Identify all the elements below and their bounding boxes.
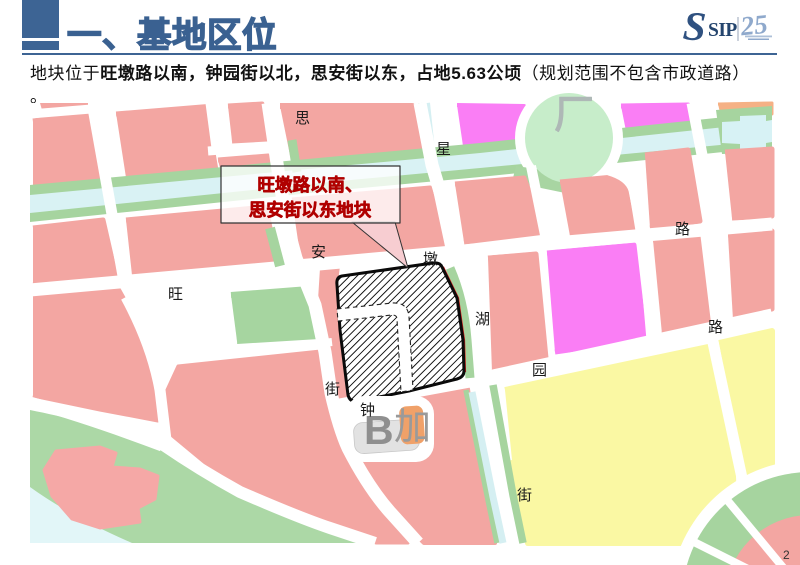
svg-text:旺: 旺 bbox=[168, 286, 183, 303]
svg-text:厂: 厂 bbox=[554, 93, 594, 137]
svg-text:安: 安 bbox=[311, 244, 326, 261]
svg-text:园: 园 bbox=[532, 362, 547, 379]
svg-text:路: 路 bbox=[675, 221, 690, 238]
svg-text:街: 街 bbox=[517, 487, 532, 504]
svg-text:路: 路 bbox=[708, 319, 723, 336]
svg-text:湖: 湖 bbox=[475, 311, 490, 328]
svg-text:思安街以东地块: 思安街以东地块 bbox=[249, 200, 372, 220]
svg-text:旺墩路以南、: 旺墩路以南、 bbox=[258, 175, 363, 195]
svg-text:街: 街 bbox=[325, 381, 340, 398]
svg-text:钟: 钟 bbox=[360, 402, 375, 419]
svg-text:加: 加 bbox=[394, 406, 431, 447]
svg-text:墩: 墩 bbox=[423, 251, 438, 268]
svg-text:星: 星 bbox=[436, 141, 451, 158]
svg-text:思: 思 bbox=[295, 110, 310, 127]
